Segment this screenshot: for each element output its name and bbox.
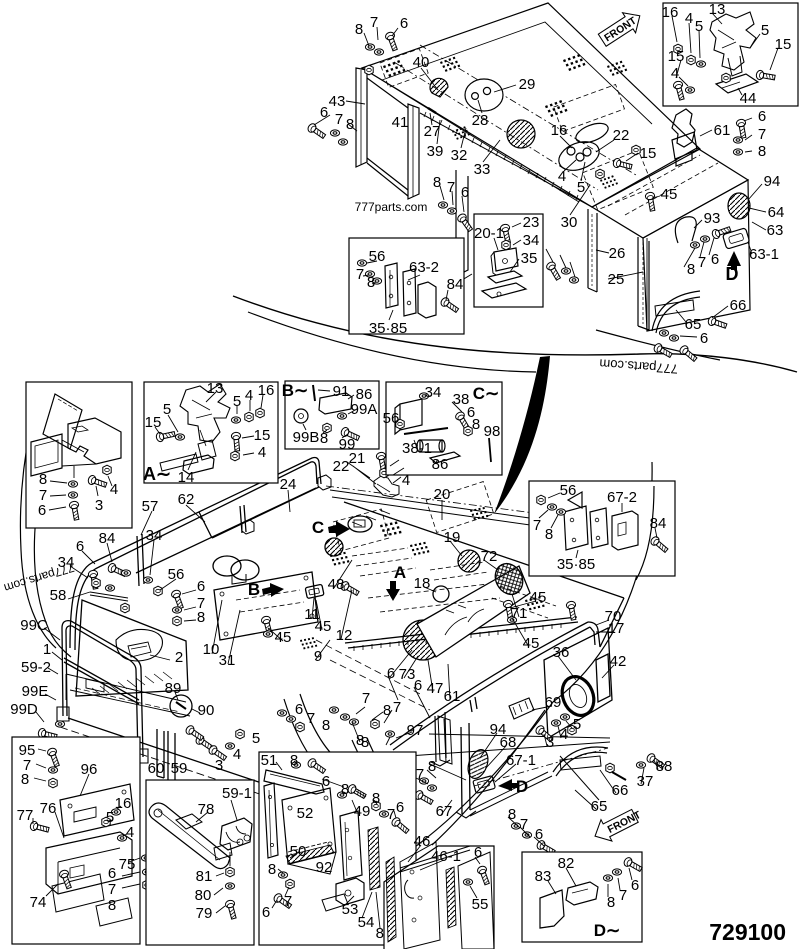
svg-text:17: 17 (608, 620, 625, 637)
svg-text:9: 9 (314, 648, 322, 665)
svg-text:29: 29 (519, 76, 536, 93)
svg-text:40: 40 (413, 54, 430, 71)
svg-text:C∼: C∼ (473, 384, 500, 403)
svg-text:74: 74 (30, 894, 47, 911)
svg-text:4: 4 (560, 726, 568, 743)
svg-text:50: 50 (290, 843, 307, 860)
svg-text:13: 13 (709, 1, 726, 18)
svg-text:8: 8 (758, 143, 766, 160)
svg-text:38-1: 38-1 (402, 440, 432, 457)
svg-text:86: 86 (432, 456, 449, 473)
svg-text:D∼: D∼ (594, 921, 621, 940)
svg-text:60: 60 (148, 760, 165, 777)
svg-text:56: 56 (383, 410, 400, 427)
svg-text:99A: 99A (351, 401, 378, 418)
svg-text:6: 6 (387, 665, 395, 682)
svg-text:44: 44 (740, 90, 757, 107)
svg-text:6: 6 (758, 108, 766, 125)
svg-text:7: 7 (356, 266, 364, 283)
svg-text:8: 8 (383, 702, 391, 719)
svg-text:42: 42 (610, 653, 627, 670)
svg-text:39: 39 (427, 143, 444, 160)
svg-text:72: 72 (481, 548, 498, 565)
svg-text:8: 8 (545, 526, 553, 543)
svg-text:729100: 729100 (709, 919, 786, 945)
svg-text:5: 5 (577, 179, 585, 196)
svg-text:49: 49 (354, 803, 371, 820)
svg-text:8: 8 (367, 274, 375, 291)
svg-text:67-1: 67-1 (506, 752, 536, 769)
svg-text:5: 5 (761, 22, 769, 39)
svg-text:22: 22 (613, 127, 630, 144)
svg-text:43: 43 (329, 93, 346, 110)
svg-text:6: 6 (76, 538, 84, 555)
svg-text:7: 7 (520, 816, 528, 833)
svg-text:45: 45 (530, 589, 547, 606)
svg-text:24: 24 (280, 476, 297, 493)
svg-text:7: 7 (335, 111, 343, 128)
svg-text:84: 84 (99, 530, 116, 547)
svg-text:32: 32 (451, 147, 468, 164)
svg-text:5: 5 (252, 730, 260, 747)
svg-text:C: C (312, 518, 324, 537)
svg-text:18: 18 (414, 575, 431, 592)
svg-text:5: 5 (163, 401, 171, 418)
svg-text:78: 78 (198, 801, 215, 818)
svg-text:31: 31 (219, 652, 236, 669)
svg-text:2: 2 (175, 649, 183, 666)
svg-text:23: 23 (523, 214, 540, 231)
svg-text:73: 73 (399, 666, 416, 683)
svg-text:16: 16 (551, 122, 568, 139)
svg-text:7: 7 (284, 893, 292, 910)
svg-text:35·85: 35·85 (557, 556, 595, 573)
svg-text:59-2: 59-2 (21, 659, 51, 676)
svg-text:99D: 99D (10, 701, 38, 718)
svg-text:28: 28 (472, 112, 489, 129)
svg-text:66: 66 (730, 297, 747, 314)
svg-text:4: 4 (126, 824, 134, 841)
svg-text:4: 4 (245, 387, 253, 404)
svg-text:6: 6 (295, 701, 303, 718)
svg-text:8: 8 (39, 471, 47, 488)
svg-text:8: 8 (472, 416, 480, 433)
svg-text:10: 10 (203, 641, 220, 658)
svg-text:7: 7 (698, 254, 706, 271)
svg-text:30: 30 (561, 214, 578, 231)
svg-text:7: 7 (370, 14, 378, 31)
svg-text:67: 67 (436, 803, 453, 820)
svg-text:6: 6 (414, 677, 422, 694)
svg-text:59-1: 59-1 (222, 785, 252, 802)
svg-text:99B: 99B (293, 429, 320, 446)
svg-text:20: 20 (434, 486, 451, 503)
svg-text:6: 6 (396, 799, 404, 816)
svg-text:8: 8 (508, 806, 516, 823)
svg-text:99C: 99C (20, 617, 48, 634)
svg-text:8: 8 (355, 21, 363, 38)
svg-text:33: 33 (474, 161, 491, 178)
svg-text:8: 8 (687, 261, 695, 278)
svg-text:15: 15 (775, 36, 792, 53)
svg-text:99E: 99E (22, 683, 49, 700)
svg-text:34: 34 (425, 384, 442, 401)
svg-text:61: 61 (714, 122, 731, 139)
svg-text:41: 41 (392, 114, 409, 131)
svg-text:63: 63 (767, 222, 784, 239)
svg-text:76: 76 (40, 800, 57, 817)
svg-text:67-2: 67-2 (607, 489, 637, 506)
svg-text:75: 75 (119, 856, 136, 873)
svg-text:22: 22 (333, 458, 350, 475)
svg-text:79: 79 (196, 905, 213, 922)
svg-text:1: 1 (43, 641, 51, 658)
svg-text:27: 27 (424, 123, 441, 140)
svg-text:16: 16 (662, 4, 679, 21)
svg-text:47: 47 (427, 680, 444, 697)
svg-text:4: 4 (685, 10, 693, 27)
svg-text:8: 8 (108, 897, 116, 914)
svg-text:63-1: 63-1 (749, 246, 779, 263)
svg-text:71: 71 (511, 605, 528, 622)
svg-text:56: 56 (168, 566, 185, 583)
svg-text:5: 5 (695, 18, 703, 35)
svg-text:7: 7 (387, 806, 395, 823)
svg-text:7: 7 (447, 179, 455, 196)
svg-text:13: 13 (207, 380, 224, 397)
svg-text:A: A (394, 563, 406, 582)
svg-text:3: 3 (546, 734, 554, 751)
svg-text:8: 8 (356, 732, 364, 749)
svg-text:82: 82 (558, 855, 575, 872)
svg-text:37: 37 (637, 773, 654, 790)
svg-text:8: 8 (607, 894, 615, 911)
svg-text:57: 57 (142, 498, 159, 515)
svg-text:91: 91 (333, 383, 350, 400)
svg-text:6: 6 (262, 904, 270, 921)
svg-text:7: 7 (108, 881, 116, 898)
svg-text:16: 16 (115, 795, 132, 812)
svg-text:16: 16 (258, 382, 275, 399)
svg-text:83: 83 (535, 868, 552, 885)
svg-text:20-1: 20-1 (474, 225, 504, 242)
svg-text:58: 58 (50, 587, 67, 604)
svg-text:63-2: 63-2 (409, 259, 439, 276)
svg-text:8: 8 (322, 717, 330, 734)
svg-text:8: 8 (346, 116, 354, 133)
svg-text:8: 8 (372, 790, 380, 807)
svg-text:7: 7 (619, 887, 627, 904)
svg-text:46: 46 (414, 833, 431, 850)
svg-text:8: 8 (320, 430, 328, 447)
svg-text:6: 6 (38, 502, 46, 519)
svg-text:B∼: B∼ (282, 381, 309, 400)
svg-text:4: 4 (671, 65, 679, 82)
svg-text:4: 4 (258, 444, 266, 461)
svg-text:25: 25 (608, 271, 625, 288)
svg-text:4: 4 (233, 746, 241, 763)
svg-text:93: 93 (704, 210, 721, 227)
svg-text:96: 96 (81, 761, 98, 778)
svg-text:8: 8 (21, 771, 29, 788)
svg-text:45: 45 (523, 635, 540, 652)
svg-text:6: 6 (711, 251, 719, 268)
svg-text:15: 15 (640, 145, 657, 162)
svg-text:6: 6 (474, 844, 482, 861)
svg-text:77: 77 (17, 807, 34, 824)
svg-text:48: 48 (328, 576, 345, 593)
svg-text:34: 34 (146, 527, 163, 544)
svg-text:6: 6 (400, 15, 408, 32)
svg-text:45: 45 (275, 629, 292, 646)
svg-text:7: 7 (533, 517, 541, 534)
svg-text:3: 3 (215, 757, 223, 774)
svg-text:7: 7 (307, 710, 315, 727)
svg-text:55: 55 (472, 896, 489, 913)
svg-text:94: 94 (764, 173, 781, 190)
svg-text:36: 36 (553, 644, 570, 661)
svg-text:7: 7 (758, 126, 766, 143)
svg-text:98: 98 (484, 423, 501, 440)
svg-text:3: 3 (95, 497, 103, 514)
svg-text:61: 61 (444, 688, 461, 705)
svg-text:5: 5 (573, 716, 581, 733)
svg-text:6: 6 (320, 104, 328, 121)
svg-text:51: 51 (261, 752, 278, 769)
svg-text:56: 56 (369, 248, 386, 265)
svg-text:A∼: A∼ (143, 464, 171, 484)
svg-text:6: 6 (108, 865, 116, 882)
svg-text:66: 66 (612, 782, 629, 799)
svg-text:56: 56 (560, 482, 577, 499)
svg-text:80: 80 (195, 887, 212, 904)
svg-text:7: 7 (362, 690, 370, 707)
svg-text:53: 53 (342, 901, 359, 918)
svg-text:7: 7 (393, 699, 401, 716)
svg-text:19: 19 (444, 529, 461, 546)
svg-text:6: 6 (535, 826, 543, 843)
svg-text:45: 45 (315, 618, 332, 635)
svg-text:88: 88 (656, 758, 673, 775)
svg-text:8: 8 (290, 752, 298, 769)
svg-text:6: 6 (322, 773, 330, 790)
svg-text:54: 54 (358, 914, 375, 931)
svg-text:52: 52 (297, 805, 314, 822)
svg-text:B: B (248, 580, 260, 599)
svg-text:26: 26 (609, 245, 626, 262)
svg-text:5: 5 (106, 809, 114, 826)
svg-text:35·85: 35·85 (369, 320, 407, 337)
svg-text:8: 8 (433, 174, 441, 191)
svg-text:92: 92 (316, 859, 333, 876)
svg-text:84: 84 (447, 276, 464, 293)
svg-text:69: 69 (545, 694, 562, 711)
svg-text:99: 99 (339, 436, 356, 453)
svg-text:4: 4 (558, 168, 566, 185)
svg-text:81: 81 (196, 868, 213, 885)
svg-text:777parts.com: 777parts.com (355, 200, 428, 214)
svg-text:6: 6 (631, 877, 639, 894)
svg-text:68: 68 (500, 734, 517, 751)
svg-text:6: 6 (197, 578, 205, 595)
svg-text:8: 8 (197, 609, 205, 626)
svg-text:15: 15 (668, 48, 685, 65)
svg-text:6: 6 (461, 184, 469, 201)
svg-text:62: 62 (178, 491, 195, 508)
svg-text:45: 45 (661, 186, 678, 203)
svg-text:15: 15 (254, 427, 271, 444)
svg-text:90: 90 (198, 702, 215, 719)
svg-text:5: 5 (233, 393, 241, 410)
svg-text:59: 59 (171, 760, 188, 777)
svg-text:46-1: 46-1 (431, 848, 461, 865)
svg-text:34: 34 (58, 554, 75, 571)
svg-text:64: 64 (768, 204, 785, 221)
svg-text:8: 8 (268, 861, 276, 878)
svg-text:89: 89 (165, 680, 182, 697)
svg-text:4: 4 (110, 481, 118, 498)
svg-text:8: 8 (341, 781, 349, 798)
svg-text:65: 65 (591, 798, 608, 815)
svg-text:97: 97 (407, 722, 424, 739)
svg-text:65: 65 (685, 316, 702, 333)
svg-text:15: 15 (145, 414, 162, 431)
svg-text:6: 6 (700, 330, 708, 347)
svg-text:7: 7 (416, 766, 424, 783)
svg-text:14: 14 (178, 469, 195, 486)
svg-text:12: 12 (336, 627, 353, 644)
svg-text:35: 35 (521, 250, 538, 267)
svg-text:34: 34 (523, 232, 540, 249)
